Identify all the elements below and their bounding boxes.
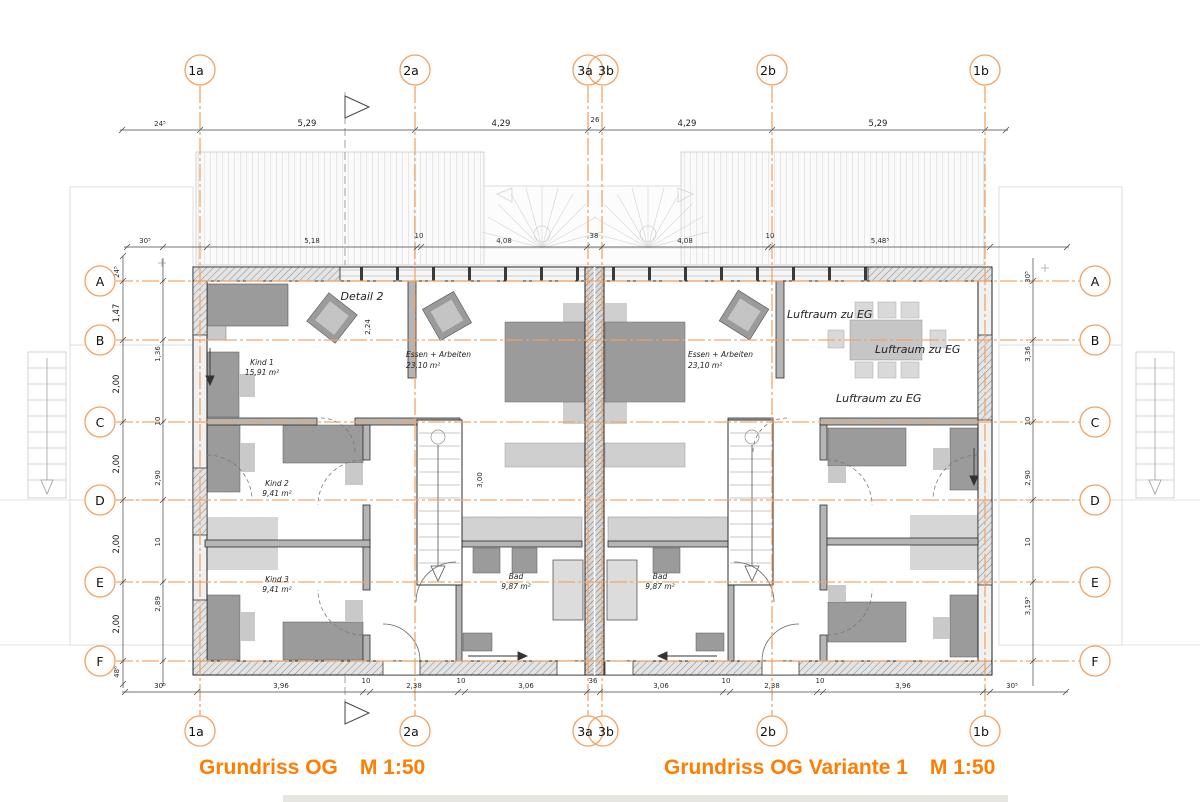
room-essen-right: Essen + Arbeiten [688,350,753,359]
dim-left-outer-2: 2,00 [112,375,122,394]
dim-right-inner-3: 2,90 [1024,470,1032,486]
room-kind1-area: 15,91 m² [245,368,279,377]
dim-mid-4: 38 [590,232,599,240]
plan-title-left: Grundriss OGM 1:50 [199,756,425,780]
dim-bottom-6: 36 [589,677,598,685]
dim-stair: 3,00 [476,472,484,488]
room-essen-left-area: 23,10 m² [406,361,440,370]
section-flag-bottom [345,702,369,724]
right-bedroom-bottom [828,585,978,657]
dim-bottom-4: 10 [457,677,466,685]
dim-bottom-1: 3,96 [273,682,289,690]
kind3-furniture [205,595,363,660]
plan-title-right-name: Grundriss OG Variante 1 [664,756,908,779]
dim-mid-7: 5,48⁵ [871,237,890,245]
floorplan-drawing: 24⁵ 5,29 4,29 26 4,29 5,29 30⁵ 5,18 10 4… [0,0,1200,802]
dim-left-inner-0: 1,36 [154,346,162,362]
floorplan-canvas: 24⁵ 5,29 4,29 26 4,29 5,29 30⁵ 5,18 10 4… [0,0,1200,802]
dim-left-outer-4: 2,00 [112,535,122,554]
dim-detail: 2,24 [364,319,372,335]
context-right-stair [1136,352,1174,498]
dim-mid-6: 10 [766,232,775,240]
dim-bottom-8: 10 [722,677,731,685]
label-luftraum-3: Luftraum zu EG [836,392,921,405]
dim-mid-0: 30⁵ [139,237,151,245]
label-luftraum-1: Luftraum zu EG [787,308,872,321]
bubble-label: A [1091,274,1100,289]
dim-bottom-10: 10 [816,677,825,685]
bubble-label: F [1091,654,1098,669]
bubble-label: C [96,415,105,430]
dim-right-inner-0: 30⁵ [1024,271,1032,283]
armchair-left-2 [422,291,471,340]
detail-annotation: Detail 2 [341,290,384,303]
label-luftraum-2: Luftraum zu EG [875,343,960,356]
bubble-label: 3a [577,63,593,78]
bubble-label: 1b [973,724,989,739]
dim-left-outer-6: 48⁶ [113,666,121,678]
table-central-right [605,303,685,467]
stairwell-left [417,420,462,585]
dim-top-5: 5,29 [869,119,888,129]
roof-hatch-left [196,152,484,265]
bed-kind1 [205,352,255,417]
dim-right-inner-4: 10 [1024,538,1032,547]
room-bad-left-area: 9,87 m² [501,582,530,591]
dim-right-inner-2: 10 [1024,417,1032,426]
dim-bottom-7: 3,06 [653,682,669,690]
bubble-label: E [1091,575,1099,590]
bubble-label: F [96,654,103,669]
bubble-label: C [1091,415,1100,430]
context-left-stair [28,352,66,498]
armchair-right [719,290,769,340]
stairwell-right [728,420,773,585]
room-kind2-area: 9,41 m² [262,489,291,498]
plan-title-right: Grundriss OG Variante 1M 1:50 [664,756,995,780]
bubble-label: 3b [598,724,614,739]
dim-bottom-0: 30⁵ [154,682,166,690]
bubble-label: 3a [577,724,593,739]
right-bedroom-top [828,428,978,490]
dim-mid-3: 4,08 [496,237,512,245]
dim-bottom-12: 30⁵ [1006,682,1018,690]
plan-title-left-name: Grundriss OG [199,756,338,779]
dim-left-inner-3: 10 [154,538,162,547]
room-essen-left: Essen + Arbeiten [406,350,471,359]
table-central-left [505,303,585,467]
dim-left-inner-1: 10 [154,417,162,426]
dim-top-4: 4,29 [678,119,697,129]
dim-bottom-5: 3,06 [518,682,534,690]
bubble-label: 2a [403,724,419,739]
plan-title-right-scale: M 1:50 [930,756,995,779]
dim-bottom-11: 3,96 [895,682,911,690]
room-bad-right: Bad [653,572,668,581]
bubble-label: B [1091,333,1100,348]
roof-hatch-right [681,152,984,265]
section-flag-top [345,96,369,118]
dim-top-0: 24⁵ [154,120,166,128]
dim-left-inner-2: 2,90 [154,470,162,486]
room-kind3-area: 9,41 m² [262,585,291,594]
dim-left-outer-3: 2,00 [112,455,122,474]
dim-right-inner-1: 3,36 [1024,346,1032,362]
plan-title-left-scale: M 1:50 [360,756,425,779]
bubble-label: D [95,493,105,508]
dim-bottom-2: 10 [362,677,371,685]
roof-area [196,152,984,265]
bubble-label: 2b [760,63,776,78]
bubble-label: 3b [598,63,614,78]
dim-mid-1: 5,18 [304,237,320,245]
dim-top-1: 5,29 [298,119,317,129]
room-essen-right-area: 23,10 m² [688,361,722,370]
bubble-label: A [96,274,105,289]
dim-bottom-9: 2,38 [764,682,780,690]
bubble-label: B [96,333,105,348]
dim-left-outer-5: 2,00 [112,615,122,634]
bubble-label: 1a [188,724,204,739]
dim-top-2: 4,29 [492,119,511,129]
bubble-label: 2b [760,724,776,739]
bubble-label: D [1090,493,1100,508]
room-bad-right-area: 9,87 m² [645,582,674,591]
room-kind3: Kind 3 [265,575,289,584]
room-bad-left: Bad [509,572,524,581]
bubble-label: E [96,575,104,590]
room-kind2: Kind 2 [265,479,289,488]
bed-living-left [202,284,288,340]
dim-left-outer-1: 1,47 [112,304,122,323]
room-kind1: Kind 1 [250,358,274,367]
adjacent-sheet-strip [283,795,1008,802]
bubble-label: 1a [188,63,204,78]
dim-mid-5: 4,08 [677,237,693,245]
bubble-label: 2a [403,63,419,78]
dim-mid-2: 10 [415,232,424,240]
dim-left-inner-4: 2,89 [154,596,162,612]
dim-right-inner-5: 3,19⁵ [1024,597,1032,616]
dim-top-3: 26 [591,116,600,124]
dim-bottom-3: 2,38 [406,682,422,690]
bubble-label: 1b [973,63,989,78]
